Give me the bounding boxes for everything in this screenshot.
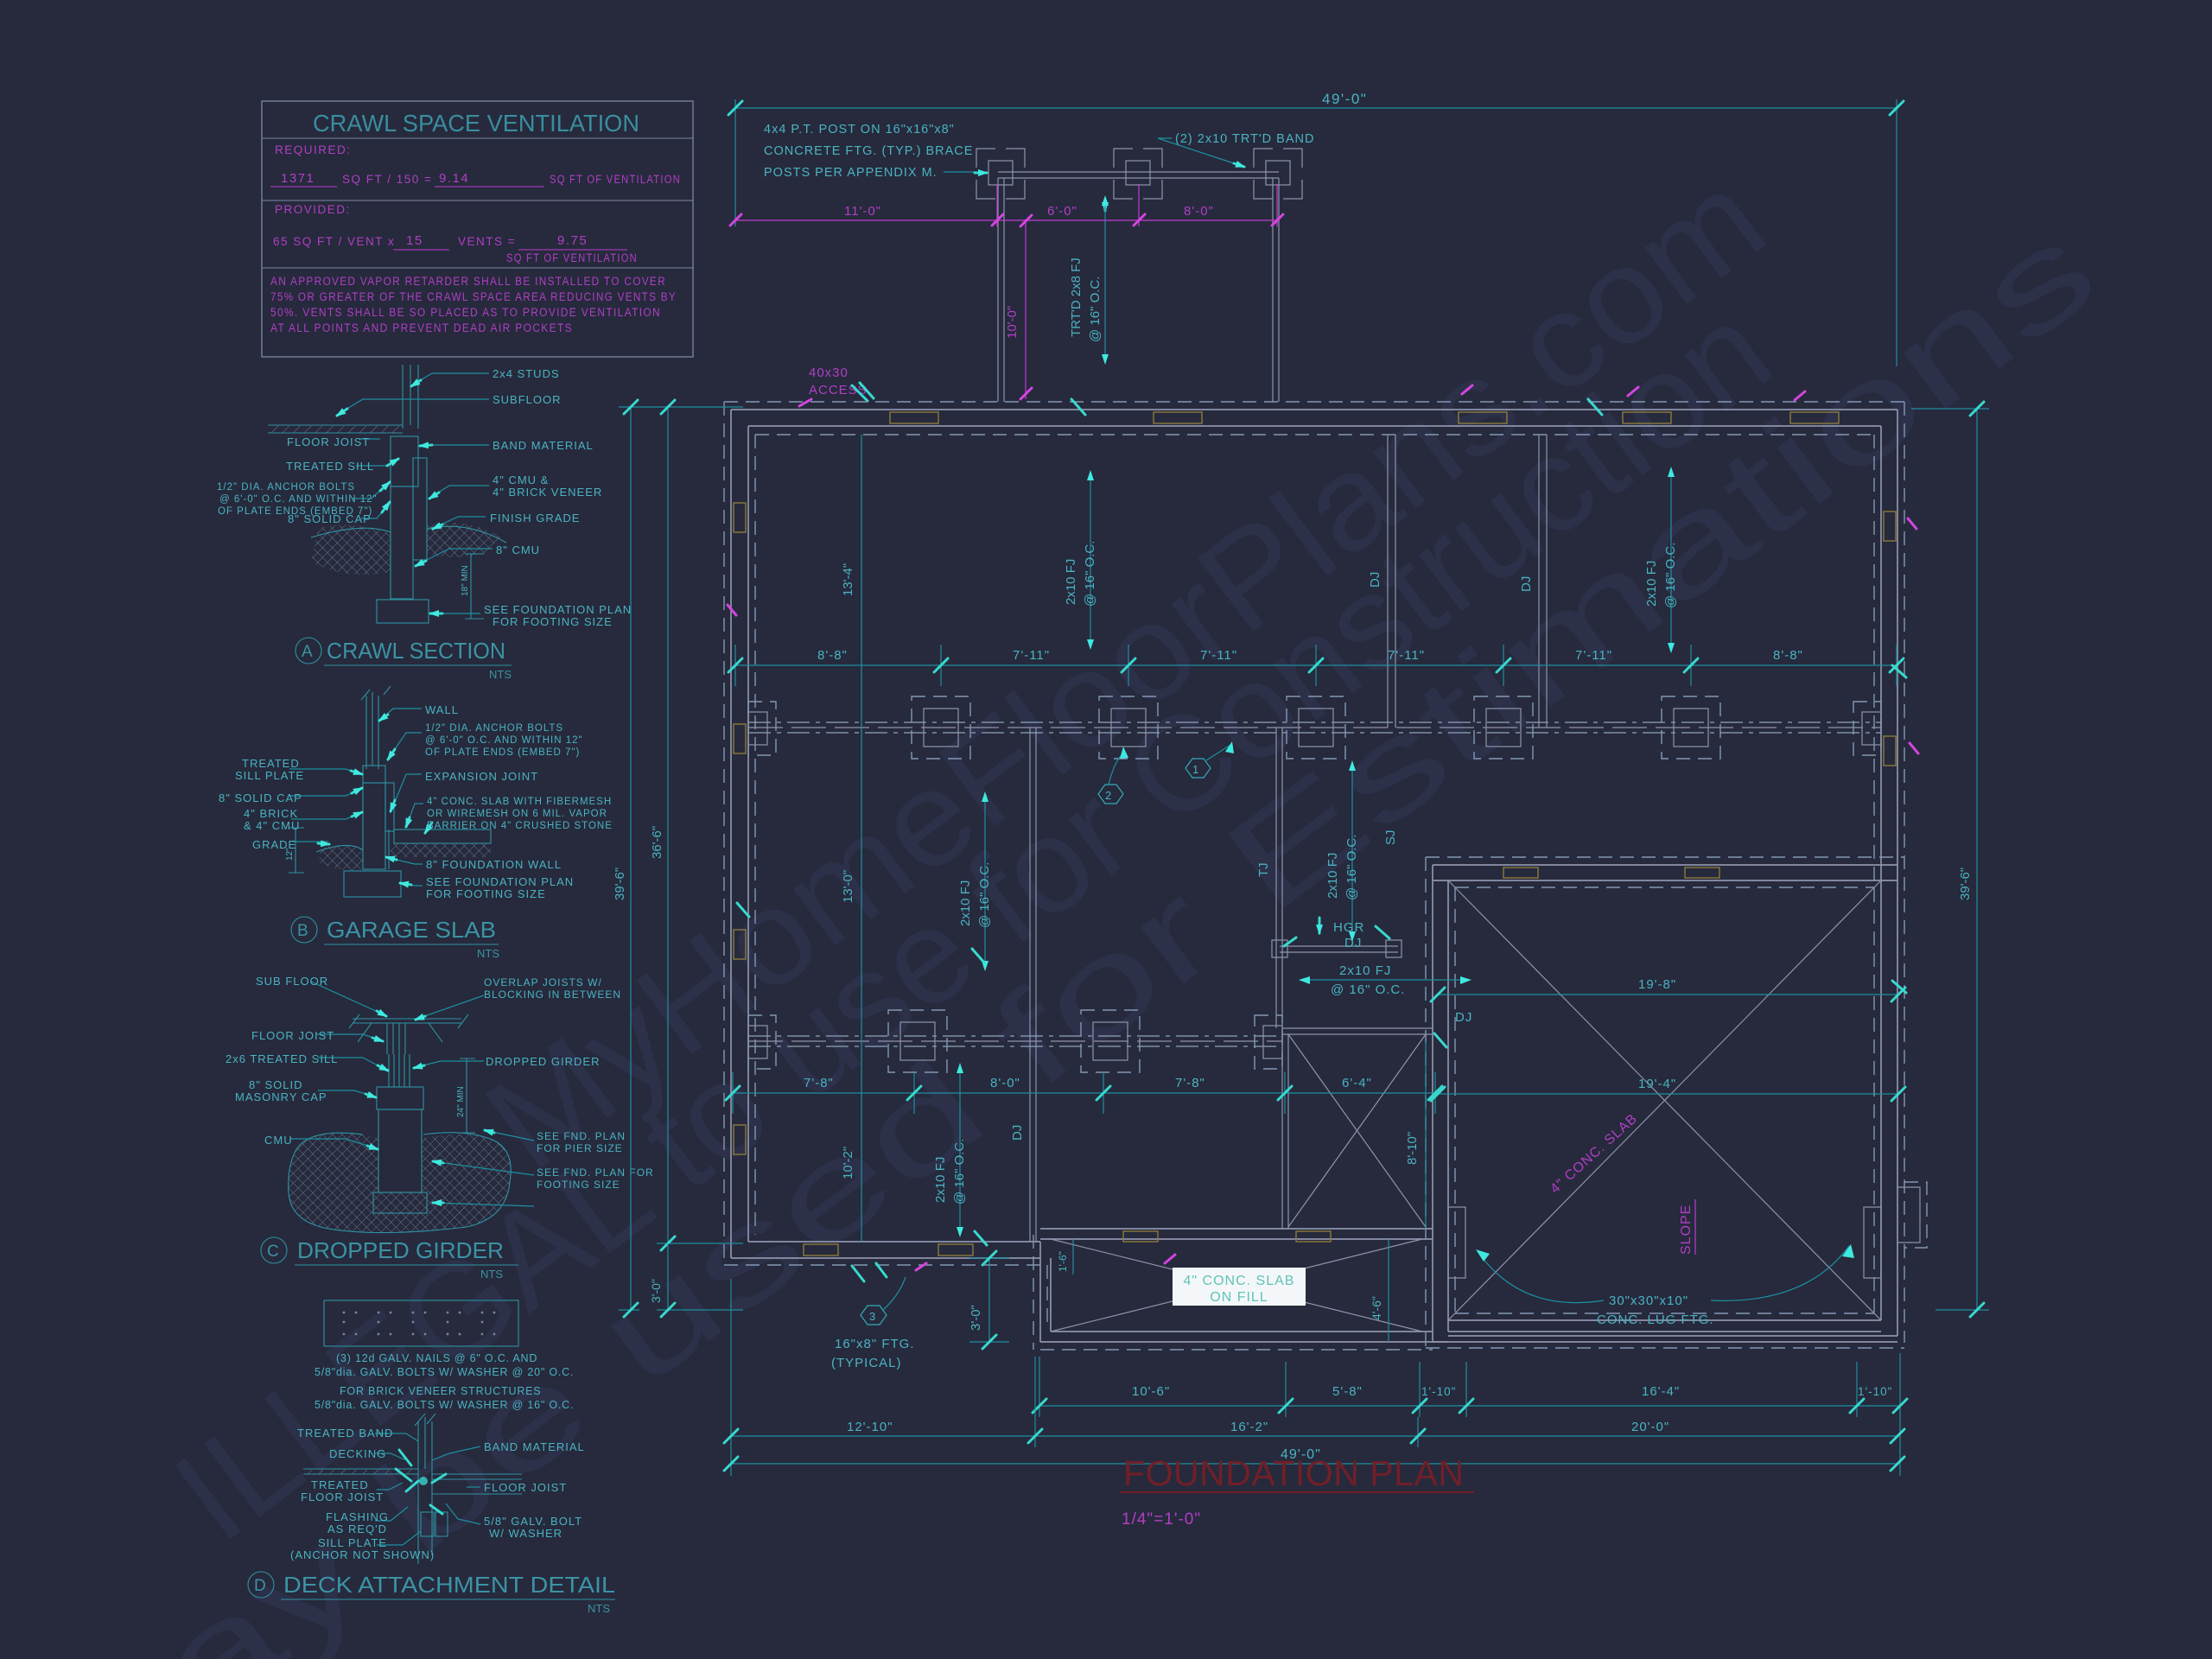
svg-text:BAND MATERIAL: BAND MATERIAL: [493, 439, 594, 452]
svg-text:4" CONC. SLAB WITH FIBERMESH: 4" CONC. SLAB WITH FIBERMESH: [427, 797, 612, 807]
svg-text:2x4 STUDS: 2x4 STUDS: [493, 367, 560, 380]
svg-text:8" SOLID CAP: 8" SOLID CAP: [219, 791, 302, 804]
svg-text:5/8"dia. GALV. BOLTS W/ WASHER: 5/8"dia. GALV. BOLTS W/ WASHER @ 20" O.C…: [315, 1366, 574, 1378]
svg-text:TREATED SILL: TREATED SILL: [286, 460, 374, 473]
svg-text:24" MIN: 24" MIN: [456, 1086, 466, 1117]
svg-text:2x10 FJ: 2x10 FJ: [1064, 559, 1078, 605]
svg-text:SQ FT OF VENTILATION: SQ FT OF VENTILATION: [506, 251, 638, 264]
svg-text:4" CONC. SLAB: 4" CONC. SLAB: [1184, 1274, 1295, 1288]
svg-text:CMU: CMU: [264, 1134, 293, 1147]
svg-text:C: C: [267, 1243, 279, 1261]
svg-text:1/2" DIA. ANCHOR BOLTS: 1/2" DIA. ANCHOR BOLTS: [425, 723, 563, 734]
svg-text:7'-11": 7'-11": [1388, 648, 1425, 663]
svg-text:SEE FND. PLAN FOR: SEE FND. PLAN FOR: [537, 1166, 654, 1179]
svg-text:5'-8": 5'-8": [1332, 1384, 1363, 1399]
svg-text:SUBFLOOR: SUBFLOOR: [493, 393, 562, 406]
svg-text:10'-0": 10'-0": [1005, 306, 1020, 339]
svg-text:1'-10": 1'-10": [1421, 1385, 1456, 1398]
svg-text:@ 6'-0" O.C. AND WITHIN 12": @ 6'-0" O.C. AND WITHIN 12": [425, 735, 583, 746]
svg-text:POSTS PER APPENDIX M.: POSTS PER APPENDIX M.: [764, 166, 938, 180]
svg-text:6'-4": 6'-4": [1342, 1076, 1372, 1090]
svg-text:16"x8" FTG.: 16"x8" FTG.: [835, 1337, 915, 1351]
svg-text:VENTS =: VENTS =: [458, 235, 516, 248]
svg-text:(3) 12d GALV. NAILS @ 6" O.C.: (3) 12d GALV. NAILS @ 6" O.C. AND: [336, 1352, 537, 1364]
svg-text:DECK ATTACHMENT DETAIL: DECK ATTACHMENT DETAIL: [283, 1572, 615, 1598]
svg-text:FLOOR JOIST: FLOOR JOIST: [484, 1481, 567, 1494]
svg-text:SILL PLATE: SILL PLATE: [318, 1536, 387, 1549]
svg-text:W/ WASHER: W/ WASHER: [489, 1527, 563, 1540]
svg-text:TJ: TJ: [1256, 862, 1271, 877]
svg-text:2x6 TREATED SILL: 2x6 TREATED SILL: [226, 1052, 338, 1065]
svg-text:8" SOLID CAP: 8" SOLID CAP: [288, 512, 372, 525]
svg-text:DJ: DJ: [1455, 1010, 1472, 1025]
svg-text:13'-0": 13'-0": [841, 870, 855, 903]
svg-text:SEE FOUNDATION PLAN: SEE FOUNDATION PLAN: [426, 875, 574, 888]
svg-text:9.75: 9.75: [557, 233, 588, 248]
svg-text:WALL: WALL: [425, 703, 459, 716]
svg-text:@ 16" O.C.: @ 16" O.C.: [1088, 276, 1103, 342]
svg-text:TREATED: TREATED: [242, 757, 300, 770]
svg-text:1371: 1371: [281, 171, 315, 186]
svg-text:NTS: NTS: [489, 668, 512, 681]
svg-text:12'-10": 12'-10": [847, 1420, 893, 1434]
svg-text:PROVIDED:: PROVIDED:: [275, 203, 351, 216]
svg-text:B: B: [297, 922, 308, 940]
svg-text:SEE FOUNDATION PLAN: SEE FOUNDATION PLAN: [484, 603, 632, 616]
svg-text:REQUIRED:: REQUIRED:: [275, 143, 352, 156]
svg-text:8" FOUNDATION WALL: 8" FOUNDATION WALL: [426, 858, 562, 871]
svg-text:AS REQ'D: AS REQ'D: [327, 1522, 387, 1535]
svg-text:@ 16" O.C.: @ 16" O.C.: [1331, 982, 1405, 997]
svg-text:4" BRICK VENEER: 4" BRICK VENEER: [493, 486, 602, 499]
svg-text:@ 16" O.C.: @ 16" O.C.: [1663, 543, 1678, 608]
svg-text:SILL PLATE: SILL PLATE: [235, 769, 304, 782]
svg-text:1: 1: [1192, 763, 1198, 776]
svg-text:4x4 P.T. POST ON 16"x16"x8": 4x4 P.T. POST ON 16"x16"x8": [764, 123, 955, 137]
svg-text:SQ FT / 150 =: SQ FT / 150 =: [342, 173, 432, 186]
svg-text:13'-4": 13'-4": [841, 563, 855, 596]
svg-text:@ 16" O.C.: @ 16" O.C.: [977, 862, 992, 928]
svg-text:TREATED: TREATED: [311, 1478, 369, 1491]
svg-text:1'-10": 1'-10": [1858, 1385, 1892, 1398]
svg-text:65 SQ FT / VENT x: 65 SQ FT / VENT x: [273, 235, 395, 248]
svg-text:ON FILL: ON FILL: [1210, 1290, 1268, 1305]
svg-text:2x10 FJ: 2x10 FJ: [958, 880, 973, 926]
svg-text:TREATED BAND: TREATED BAND: [297, 1427, 393, 1440]
svg-text:3'-0": 3'-0": [649, 1279, 663, 1303]
svg-text:FOR PIER SIZE: FOR PIER SIZE: [537, 1142, 623, 1154]
svg-text:FOR BRICK VENEER STRUCTURES: FOR BRICK VENEER STRUCTURES: [340, 1385, 541, 1397]
svg-text:8" SOLID: 8" SOLID: [249, 1078, 302, 1091]
svg-text:FLOOR JOIST: FLOOR JOIST: [301, 1491, 384, 1503]
svg-text:5/8"dia. GALV. BOLTS W/ WASHER: 5/8"dia. GALV. BOLTS W/ WASHER @ 16" O.C…: [315, 1399, 574, 1411]
svg-text:NTS: NTS: [480, 1268, 503, 1281]
svg-text:18" MIN: 18" MIN: [461, 565, 470, 596]
svg-text:39'-6": 39'-6": [1958, 868, 1973, 900]
svg-text:1/2" DIA. ANCHOR BOLTS: 1/2" DIA. ANCHOR BOLTS: [217, 482, 355, 493]
svg-text:4'-6": 4'-6": [1370, 1296, 1383, 1320]
svg-text:FLOOR JOIST: FLOOR JOIST: [251, 1029, 334, 1042]
svg-text:BLOCKING IN BETWEEN: BLOCKING IN BETWEEN: [484, 988, 621, 1001]
svg-text:OR WIREMESH ON 6 MIL. VAPOR: OR WIREMESH ON 6 MIL. VAPOR: [427, 809, 607, 819]
svg-text:1/4"=1'-0": 1/4"=1'-0": [1122, 1510, 1201, 1529]
svg-text:DJ: DJ: [1368, 572, 1382, 588]
svg-text:GRADE: GRADE: [252, 838, 296, 851]
svg-text:2x10 FJ: 2x10 FJ: [1644, 561, 1659, 607]
svg-text:4" BRICK: 4" BRICK: [244, 807, 298, 820]
svg-text:19'-4": 19'-4": [1638, 1077, 1676, 1091]
svg-text:CONCRETE FTG. (TYP.) BRACE: CONCRETE FTG. (TYP.) BRACE: [764, 144, 973, 158]
svg-text:20'-0": 20'-0": [1631, 1420, 1669, 1434]
svg-text:50%. VENTS SHALL BE SO PLACED: 50%. VENTS SHALL BE SO PLACED AS TO PROV…: [270, 306, 661, 319]
svg-text:8'-0": 8'-0": [1184, 204, 1214, 219]
svg-text:BARRIER ON 4" CRUSHED STONE: BARRIER ON 4" CRUSHED STONE: [427, 821, 613, 831]
svg-text:AN APPROVED VAPOR RETARDER SHA: AN APPROVED VAPOR RETARDER SHALL BE INST…: [270, 275, 666, 288]
svg-text:49'-0": 49'-0": [1322, 91, 1367, 107]
svg-text:15: 15: [406, 233, 423, 248]
svg-text:3'-0": 3'-0": [969, 1305, 983, 1331]
svg-text:1'-6": 1'-6": [1057, 1251, 1069, 1272]
svg-text:10'-2": 10'-2": [841, 1147, 855, 1179]
svg-text:DROPPED GIRDER: DROPPED GIRDER: [486, 1055, 600, 1068]
svg-text:NTS: NTS: [588, 1602, 610, 1615]
svg-text:FINISH GRADE: FINISH GRADE: [490, 512, 580, 524]
svg-text:8" CMU: 8" CMU: [496, 543, 540, 556]
svg-text:CONC. LUG FTG.: CONC. LUG FTG.: [1597, 1313, 1714, 1327]
svg-text:30"x30"x10": 30"x30"x10": [1609, 1294, 1688, 1308]
svg-text:@ 16" O.C.: @ 16" O.C.: [1083, 541, 1097, 607]
svg-text:2x10 FJ: 2x10 FJ: [933, 1157, 948, 1203]
svg-text:GARAGE SLAB: GARAGE SLAB: [327, 917, 496, 943]
svg-text:@ 16" O.C.: @ 16" O.C.: [1344, 835, 1359, 900]
svg-text:DJ: DJ: [1344, 936, 1362, 950]
svg-text:DROPPED GIRDER: DROPPED GIRDER: [297, 1237, 504, 1263]
svg-text:@ 6'-0" O.C. AND WITHIN 12": @ 6'-0" O.C. AND WITHIN 12": [219, 494, 378, 505]
svg-text:7'-11": 7'-11": [1200, 648, 1237, 663]
svg-text:TRT'D 2x8 FJ: TRT'D 2x8 FJ: [1069, 257, 1084, 337]
svg-text:& 4" CMU: & 4" CMU: [244, 819, 300, 832]
svg-text:@ 16" O.C.: @ 16" O.C.: [952, 1139, 967, 1205]
svg-text:BAND MATERIAL: BAND MATERIAL: [484, 1440, 585, 1453]
svg-text:CRAWL SECTION: CRAWL SECTION: [327, 638, 505, 664]
svg-text:39'-6": 39'-6": [613, 868, 627, 900]
svg-text:19'-8": 19'-8": [1638, 977, 1676, 992]
svg-text:CRAWL SPACE VENTILATION: CRAWL SPACE VENTILATION: [313, 110, 639, 137]
svg-text:HGR: HGR: [1333, 920, 1364, 935]
svg-text:9.14: 9.14: [439, 171, 469, 186]
svg-text:OF PLATE ENDS (EMBED 7"): OF PLATE ENDS (EMBED 7"): [425, 747, 580, 758]
svg-text:FLASHING: FLASHING: [326, 1510, 389, 1523]
svg-text:2: 2: [1105, 789, 1111, 802]
svg-text:(ANCHOR NOT SHOWN): (ANCHOR NOT SHOWN): [290, 1548, 435, 1561]
svg-text:FOR FOOTING SIZE: FOR FOOTING SIZE: [493, 615, 613, 628]
svg-text:5/8" GALV. BOLT: 5/8" GALV. BOLT: [484, 1515, 582, 1528]
svg-text:40x30: 40x30: [809, 365, 849, 380]
svg-text:7'-8": 7'-8": [1175, 1076, 1205, 1090]
svg-text:8'-8": 8'-8": [817, 648, 848, 663]
svg-text:7'-11": 7'-11": [1013, 648, 1050, 663]
svg-text:DECKING: DECKING: [329, 1447, 386, 1460]
svg-text:7'-8": 7'-8": [804, 1076, 834, 1090]
svg-text:A: A: [302, 643, 313, 661]
svg-text:SJ: SJ: [1383, 829, 1398, 845]
svg-text:FOR FOOTING SIZE: FOR FOOTING SIZE: [426, 887, 546, 900]
svg-text:DJ: DJ: [1010, 1125, 1025, 1141]
svg-text:SUB FLOOR: SUB FLOOR: [256, 975, 328, 988]
svg-text:7'-11": 7'-11": [1575, 648, 1612, 663]
svg-text:4" CMU &: 4" CMU &: [493, 474, 549, 486]
svg-text:SQ FT OF VENTILATION: SQ FT OF VENTILATION: [550, 173, 681, 186]
svg-text:SLOPE: SLOPE: [1679, 1205, 1694, 1255]
svg-text:11'-0": 11'-0": [844, 204, 881, 219]
svg-text:(TYPICAL): (TYPICAL): [831, 1356, 902, 1370]
svg-text:75% OR GREATER OF THE CRAWL SP: 75% OR GREATER OF THE CRAWL SPACE AREA R…: [270, 290, 677, 303]
svg-text:(2) 2x10 TRT'D BAND: (2) 2x10 TRT'D BAND: [1175, 132, 1314, 146]
svg-text:3: 3: [869, 1310, 875, 1323]
svg-text:8'-8": 8'-8": [1773, 648, 1803, 663]
svg-text:6'-0": 6'-0": [1047, 204, 1077, 219]
svg-text:8'-10": 8'-10": [1405, 1132, 1420, 1165]
svg-text:2x10 FJ: 2x10 FJ: [1325, 853, 1340, 899]
svg-text:NTS: NTS: [477, 947, 499, 960]
svg-text:OVERLAP JOISTS W/: OVERLAP JOISTS W/: [484, 976, 602, 988]
svg-text:SEE FND. PLAN: SEE FND. PLAN: [537, 1130, 626, 1142]
svg-text:FOUNDATION PLAN: FOUNDATION PLAN: [1123, 1453, 1469, 1493]
svg-text:10'-6": 10'-6": [1132, 1384, 1170, 1399]
svg-text:FOOTING SIZE: FOOTING SIZE: [537, 1179, 620, 1191]
svg-text:36'-6": 36'-6": [650, 826, 664, 859]
svg-text:FLOOR JOIST: FLOOR JOIST: [287, 435, 370, 448]
svg-text:AT ALL POINTS AND PREVENT DEAD: AT ALL POINTS AND PREVENT DEAD AIR POCKE…: [270, 321, 573, 334]
svg-text:DJ: DJ: [1519, 576, 1534, 592]
svg-text:8'-0": 8'-0": [990, 1076, 1020, 1090]
svg-text:EXPANSION JOINT: EXPANSION JOINT: [425, 770, 538, 783]
svg-text:16'-4": 16'-4": [1642, 1384, 1680, 1399]
svg-text:16'-2": 16'-2": [1230, 1420, 1268, 1434]
svg-text:D: D: [254, 1577, 266, 1595]
svg-text:MASONRY CAP: MASONRY CAP: [235, 1090, 327, 1103]
svg-text:2x10 FJ: 2x10 FJ: [1339, 963, 1391, 978]
